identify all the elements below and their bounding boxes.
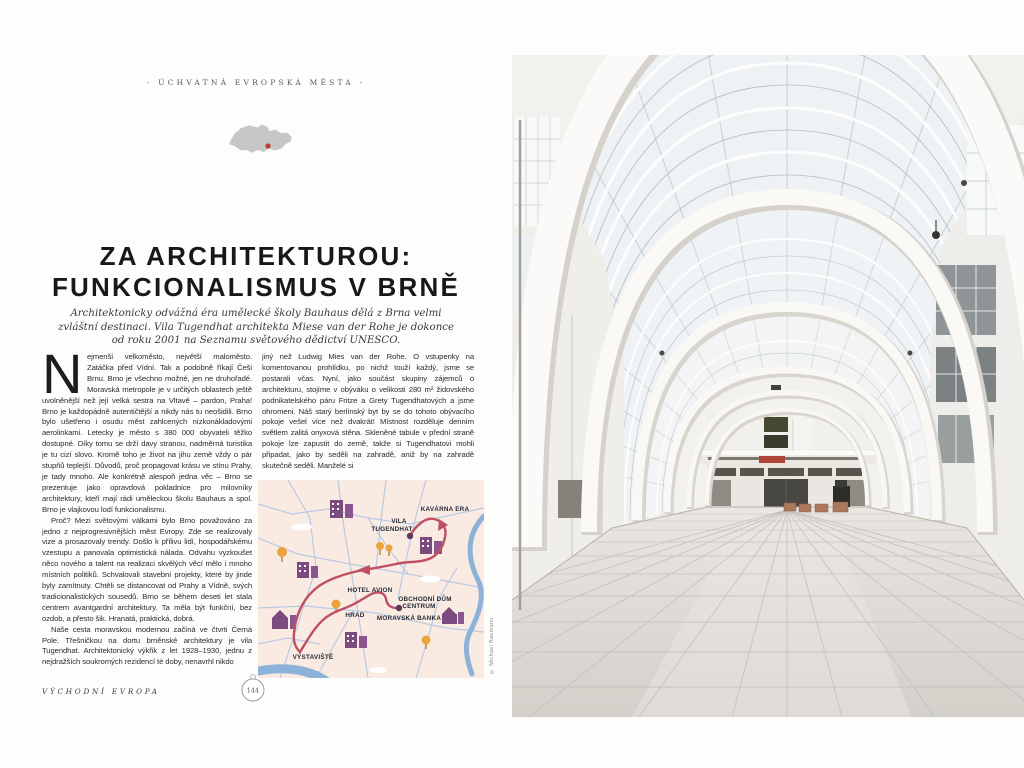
footer-section-label: VÝCHODNÍ EVROPA — [42, 687, 160, 696]
body-column-left: Nejmenší velkoměsto, největší maloměsto.… — [42, 352, 252, 689]
czech-republic-map — [222, 116, 292, 170]
photo-credit: © Michael Baumann — [489, 594, 495, 674]
map-label-kavarna-era: KAVÁRNA ERA — [421, 504, 470, 513]
obchodni-dum-marker — [396, 605, 402, 611]
map-label-moravska-banka: MORAVSKÁ BANKA — [377, 613, 441, 622]
map-label-vila: VILA — [391, 518, 407, 525]
page-number-badge: 144 — [239, 673, 267, 704]
article-title: ZA ARCHITEKTUROU: FUNKCIONALISMUS V BRNĚ — [9, 241, 503, 303]
article-title-line1: ZA ARCHITEKTUROU: — [9, 241, 503, 272]
paragraph: Nejmenší velkoměsto, největší maloměsto.… — [42, 352, 252, 516]
map-label-hotel-avion: HOTEL AVION — [348, 587, 393, 594]
article-title-line2: FUNKCIONALISMUS V BRNĚ — [9, 272, 503, 303]
body-column-right: jiný než Ludwig Mies van der Rohe. O vst… — [262, 352, 474, 483]
map-label-centrum: CENTRUM — [402, 603, 435, 610]
brno-walking-map: KAVÁRNA ERA VILA TUGENDHAT HOTEL AVION O… — [258, 480, 484, 678]
paragraph: Proč? Mezi světovými válkami bylo Brno p… — [42, 516, 252, 625]
country-silhouette — [229, 125, 292, 153]
section-header: - ÚCHVATNÁ EVROPSKÁ MĚSTA - — [0, 78, 512, 87]
map-label-hrad: HRAD — [345, 612, 364, 619]
exhibition-hall-photo — [512, 55, 1024, 717]
paragraph: jiný než Ludwig Mies van der Rohe. O vst… — [262, 352, 474, 472]
article-subtitle: Architektonicky odvážná éra umělecké ško… — [56, 307, 456, 348]
paragraph: Naše cesta moravskou modernou začíná ve … — [42, 625, 252, 669]
map-label-tugendhat: TUGENDHAT — [371, 526, 412, 533]
magazine-spread: - ÚCHVATNÁ EVROPSKÁ MĚSTA - ZA ARCHITEKT… — [0, 0, 1024, 768]
map-label-vystaviste: VÝSTAVIŠTĚ — [293, 652, 334, 661]
red-sign — [759, 456, 785, 463]
vila-tugendhat-marker — [407, 533, 413, 539]
page-number: 144 — [247, 687, 259, 695]
drop-cap: N — [42, 353, 82, 395]
brno-marker — [265, 143, 270, 148]
